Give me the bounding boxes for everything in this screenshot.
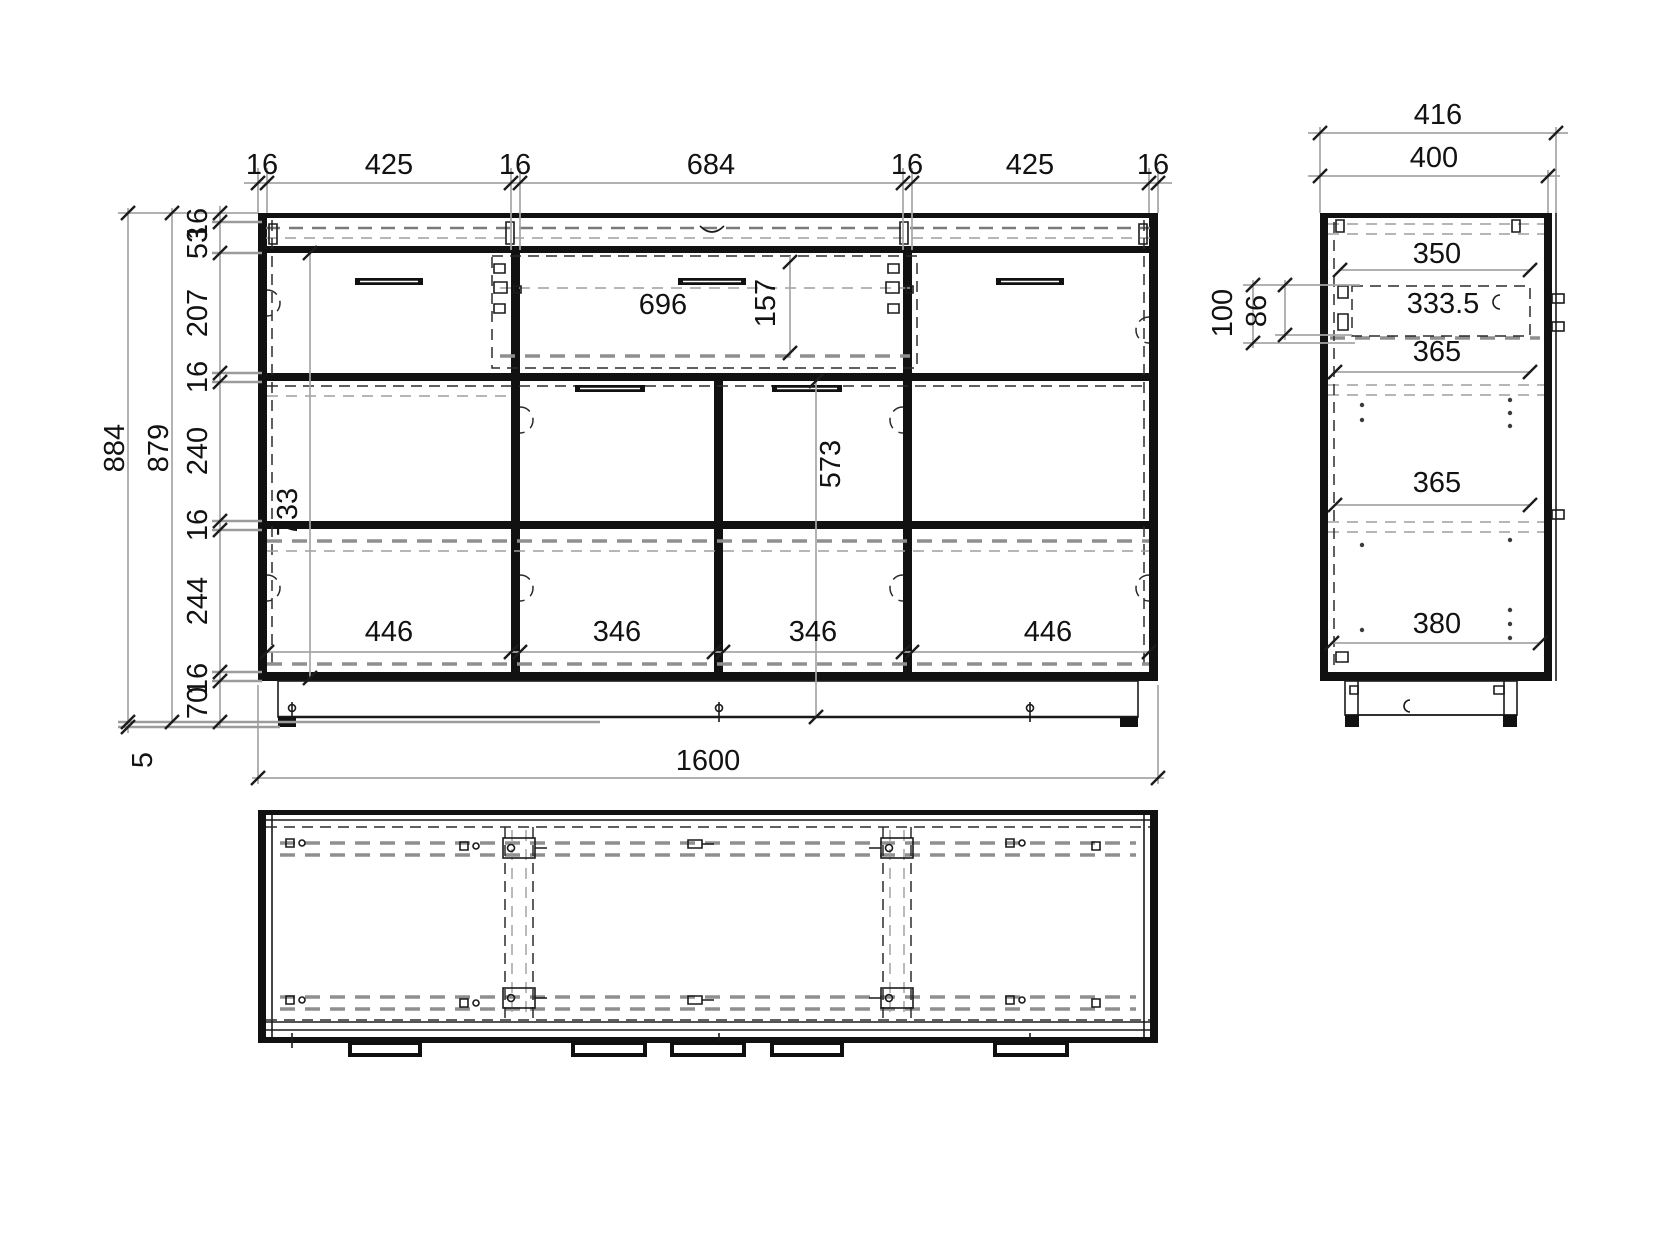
plan-feet-tabs [350, 1043, 1067, 1055]
plan-view [258, 810, 1158, 1055]
dim-overall-width: 1600 [676, 745, 741, 777]
dim-left-240: 240 [182, 427, 214, 475]
dim-overall-height: 884 [99, 424, 131, 472]
plan-hardware-symbols [286, 839, 1100, 1048]
side-shelf-hidden [1328, 385, 1544, 532]
side-foot [1345, 681, 1517, 727]
dim-overall-depth: 416 [1414, 99, 1462, 131]
dim-top-425-1: 425 [365, 149, 413, 181]
dim-left-244: 244 [182, 577, 214, 625]
dim-bottom-cell-4: 446 [1024, 616, 1072, 648]
dim-top-16-1: 16 [246, 149, 278, 181]
side-view: 416 400 350 333.5 365 365 380 100 86 [1207, 99, 1568, 727]
dim-left-53: 53 [182, 227, 214, 259]
dim-foot-height: 5 [127, 752, 159, 768]
center-drawer-outline [492, 256, 917, 368]
dim-drawer-front-height: 157 [750, 279, 782, 327]
front-extension-lines [118, 168, 1172, 784]
side-shelf-pin-holes [1360, 398, 1512, 640]
drawer-handles [355, 278, 1064, 285]
dim-shelf-depth-1: 365 [1413, 336, 1461, 368]
dim-left-16-3: 16 [182, 509, 214, 541]
dim-door-section-height: 573 [815, 440, 847, 488]
plinth [278, 681, 1138, 727]
dim-top-16-4: 16 [1137, 149, 1169, 181]
dim-shelf-depth-2: 365 [1413, 467, 1461, 499]
dim-left-70: 70 [182, 687, 214, 719]
dim-left-section-height: 733 [272, 488, 304, 536]
side-dimension-ticks [1246, 126, 1563, 650]
dim-top-425-2: 425 [1006, 149, 1054, 181]
dim-bottom-cell-2: 346 [593, 616, 641, 648]
dim-drawer-top-offset: 100 [1207, 289, 1239, 337]
dim-drawer-box-height: 86 [1241, 295, 1273, 327]
dim-top-16-2: 16 [499, 149, 531, 181]
dim-bottom-cell-1: 446 [365, 616, 413, 648]
cabinet-technical-drawing: 16 425 16 684 16 425 16 16 53 207 16 240… [0, 0, 1671, 1253]
dim-carcass-depth: 400 [1410, 142, 1458, 174]
top-strip-connectors [269, 222, 1147, 244]
dim-top-684: 684 [687, 149, 735, 181]
dim-top-panel-depth: 350 [1413, 238, 1461, 270]
dim-left-207: 207 [182, 289, 214, 337]
hinge-arcs [267, 290, 1149, 601]
dim-top-16-3: 16 [891, 149, 923, 181]
dim-carcass-height: 879 [143, 424, 175, 472]
dim-left-16-2: 16 [182, 361, 214, 393]
dim-drawer-depth: 333.5 [1407, 288, 1480, 320]
dim-center-drawer-width: 696 [639, 289, 687, 321]
dim-bottom-panel-depth: 380 [1413, 608, 1461, 640]
plan-inner-edges [266, 815, 1150, 1037]
plan-rail-hidden [280, 843, 1136, 1009]
dim-bottom-cell-3: 346 [789, 616, 837, 648]
front-view: 16 425 16 684 16 425 16 16 53 207 16 240… [99, 149, 1172, 785]
side-panel-hidden-edges [272, 220, 1144, 668]
